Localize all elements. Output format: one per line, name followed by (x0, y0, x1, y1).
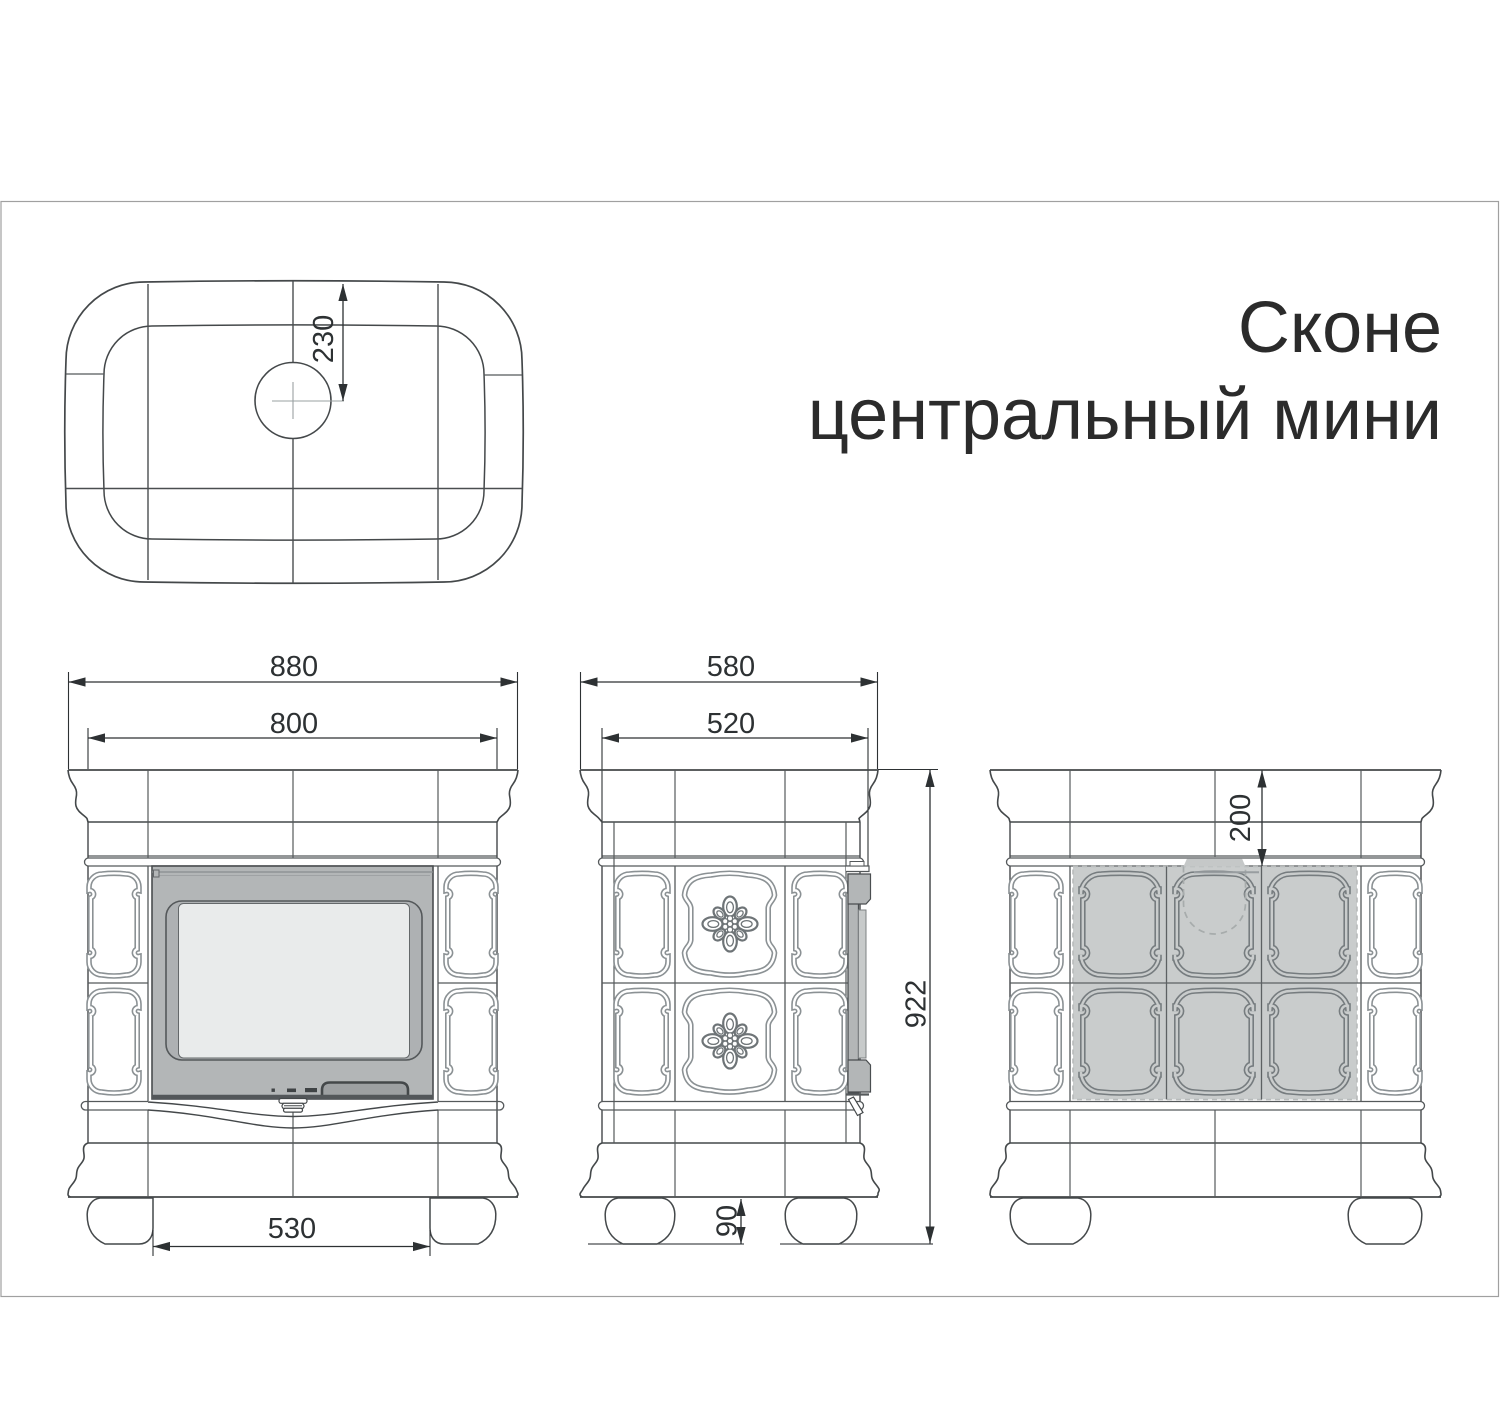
svg-text:520: 520 (707, 708, 755, 740)
svg-text:Сконе: Сконе (1238, 288, 1442, 368)
svg-text:230: 230 (308, 315, 340, 363)
svg-text:800: 800 (270, 708, 318, 740)
svg-text:90: 90 (712, 1205, 744, 1237)
svg-text:880: 880 (270, 651, 318, 683)
svg-text:922: 922 (901, 980, 933, 1028)
svg-text:580: 580 (707, 651, 755, 683)
svg-text:530: 530 (268, 1213, 316, 1245)
svg-text:центральный мини: центральный мини (808, 375, 1442, 455)
svg-text:200: 200 (1225, 794, 1257, 842)
